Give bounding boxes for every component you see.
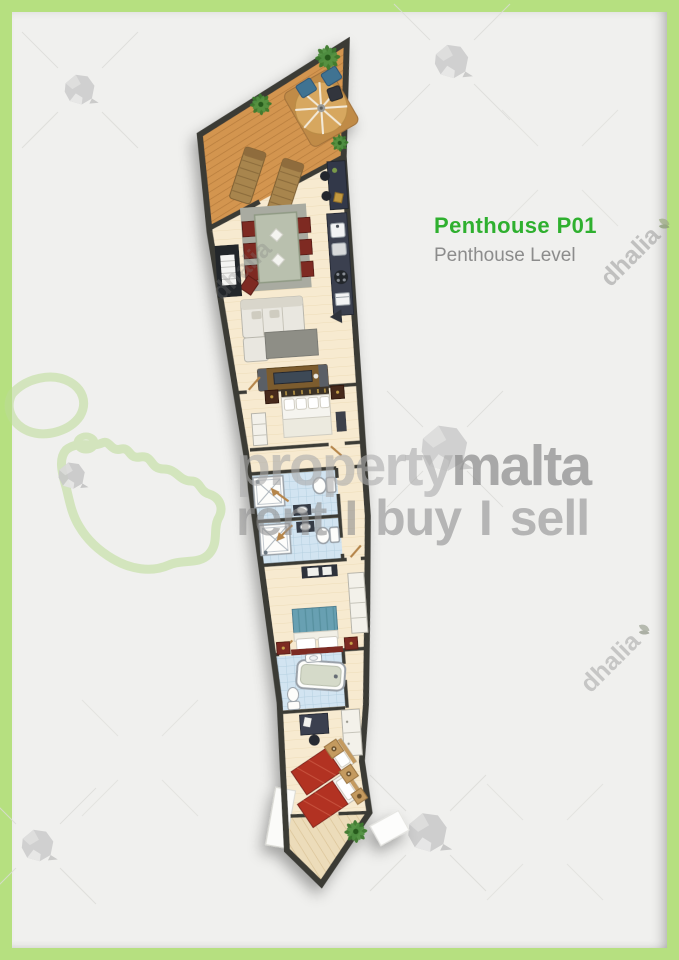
brand-watermark: propertymalta bbox=[236, 438, 590, 495]
page-subtitle: Penthouse Level bbox=[434, 245, 576, 267]
page-title: Penthouse P01 bbox=[434, 213, 597, 239]
tagline-watermark: rent I buy I sell bbox=[236, 493, 589, 543]
scanned-brochure-page: propertymalta rent I buy I sell dhalia d… bbox=[0, 0, 679, 960]
brand-suffix: malta bbox=[451, 434, 590, 498]
brand-prefix: property bbox=[236, 434, 451, 498]
